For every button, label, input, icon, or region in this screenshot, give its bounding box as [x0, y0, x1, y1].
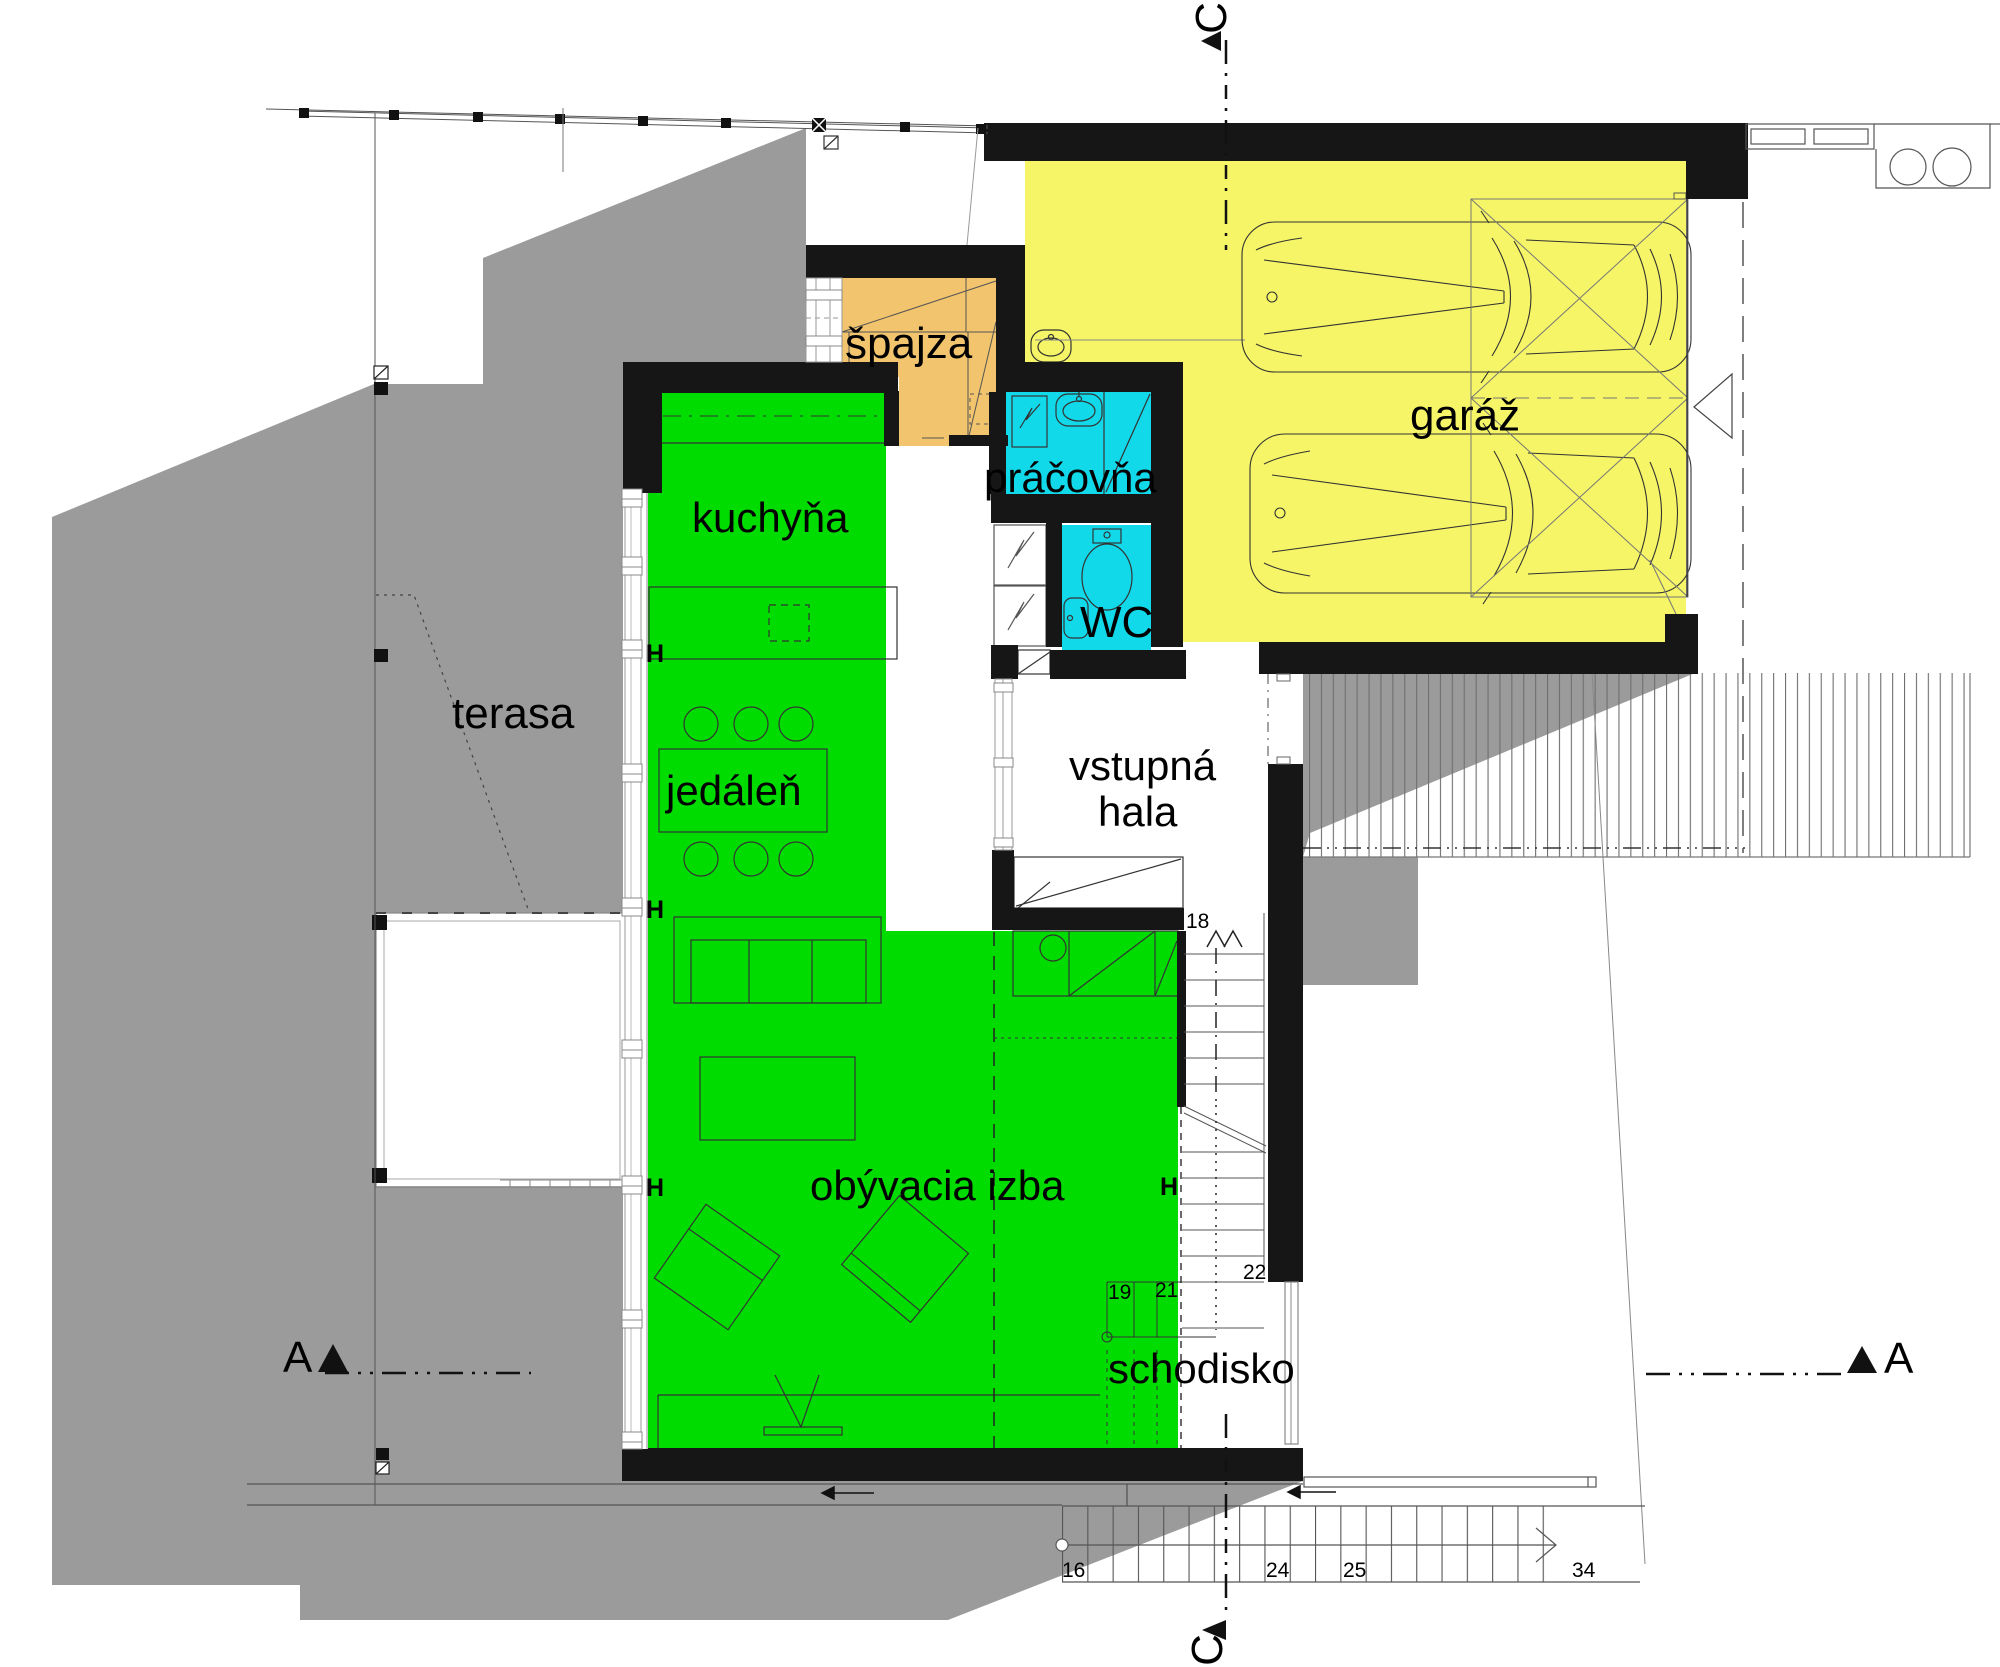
- svg-text:25: 25: [1343, 1559, 1366, 1582]
- svg-text:22: 22: [1243, 1261, 1266, 1284]
- svg-text:H: H: [646, 1174, 664, 1202]
- svg-text:H: H: [646, 640, 664, 668]
- svg-text:A: A: [1884, 1334, 1914, 1383]
- svg-text:schodisko: schodisko: [1108, 1345, 1295, 1392]
- svg-text:garáž: garáž: [1410, 391, 1520, 440]
- svg-text:jedáleň: jedáleň: [664, 767, 801, 814]
- svg-text:H: H: [646, 896, 664, 924]
- svg-text:H: H: [1160, 1173, 1178, 1201]
- svg-text:špajza: špajza: [845, 319, 973, 368]
- svg-text:34: 34: [1572, 1559, 1596, 1582]
- svg-text:hala: hala: [1098, 788, 1178, 835]
- svg-text:obývacia izba: obývacia izba: [810, 1162, 1065, 1209]
- svg-text:terasa: terasa: [452, 689, 575, 738]
- svg-text:vstupná: vstupná: [1069, 742, 1217, 789]
- svg-text:19: 19: [1108, 1281, 1131, 1304]
- svg-text:WC: WC: [1080, 598, 1153, 647]
- svg-text:18: 18: [1186, 910, 1209, 933]
- svg-text:21: 21: [1155, 1279, 1178, 1302]
- svg-text:C: C: [1187, 2, 1236, 34]
- svg-text:A: A: [283, 1333, 313, 1382]
- svg-text:24: 24: [1266, 1559, 1290, 1582]
- svg-text:práčovňa: práčovňa: [984, 454, 1157, 501]
- svg-text:kuchyňa: kuchyňa: [692, 494, 849, 541]
- svg-text:16: 16: [1062, 1559, 1085, 1582]
- svg-text:C: C: [1183, 1634, 1232, 1666]
